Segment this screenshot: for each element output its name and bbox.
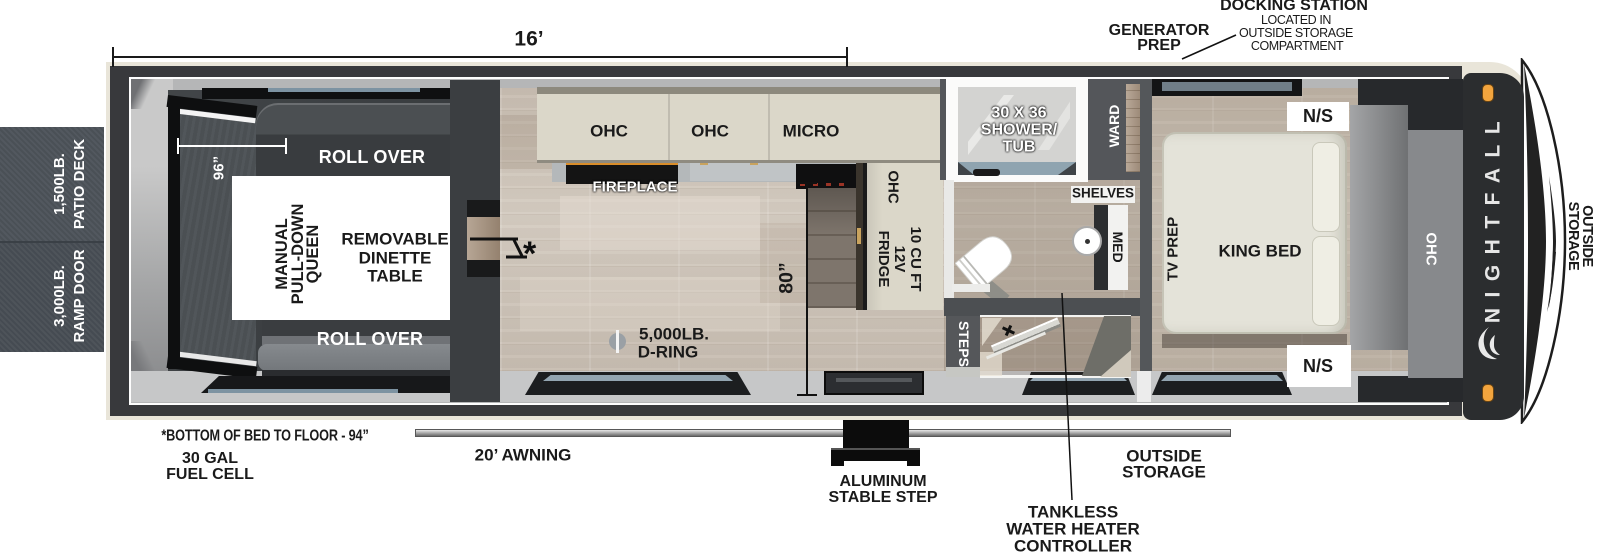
svg-text:*: *: [523, 235, 537, 265]
